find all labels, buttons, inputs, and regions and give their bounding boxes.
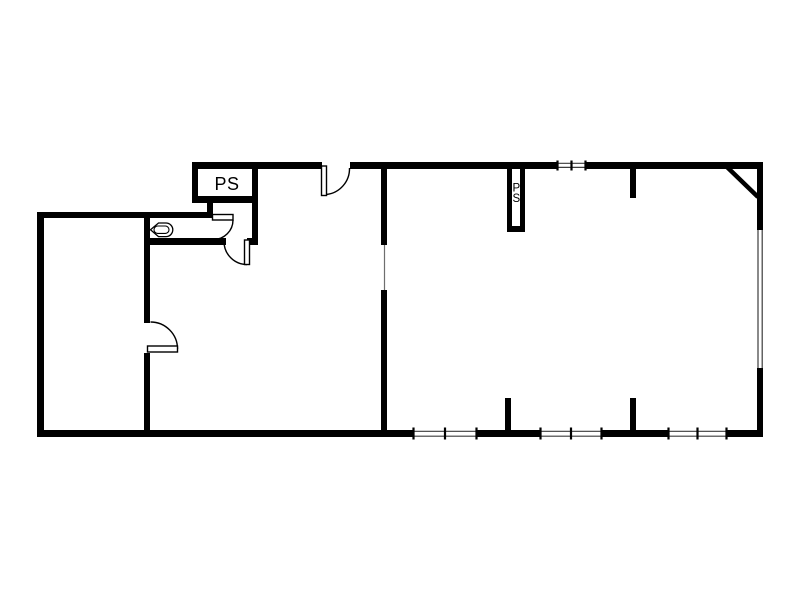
middle-wall-lower (381, 290, 387, 437)
ps-wc-right-wall (252, 162, 258, 245)
toilet-entry-door (224, 240, 250, 265)
bottom-stub-a (505, 398, 511, 437)
top-wall-right (586, 162, 763, 169)
door-leaf (245, 240, 250, 265)
door-leaf (148, 346, 178, 352)
left-room-top-wall (37, 212, 213, 218)
ps-room-bottom-wall (192, 196, 258, 203)
door-leaf (213, 215, 234, 221)
bottom-window-2 (540, 428, 602, 440)
floor-plan-drawing: PS P S (0, 0, 800, 600)
top-entry-door (322, 166, 350, 196)
top-window (557, 161, 586, 171)
bottom-window-3 (668, 428, 727, 440)
middle-wall-upper (381, 162, 387, 245)
room-divider-wall-upper (144, 212, 150, 323)
pipe-shaft-left-label: PS (214, 174, 239, 194)
right-wall-lower (757, 368, 763, 437)
left-outer-wall (37, 212, 44, 437)
urinal-bowl (154, 226, 169, 233)
door-swing-arc (214, 220, 234, 240)
corner-brace (727, 167, 758, 197)
top-stub-wall (630, 162, 636, 198)
walls (37, 162, 763, 437)
bottom-wall-1 (37, 430, 413, 437)
fixtures (151, 223, 173, 237)
room-divider-wall-lower (144, 353, 150, 437)
windows (413, 161, 762, 440)
shaft-bottom-wall (507, 226, 525, 232)
bottom-window-1 (413, 428, 477, 440)
shaft-right-wall (520, 162, 525, 232)
pipe-shaft-right-label-s: S (512, 193, 520, 205)
floor-plan-canvas: PS P S (0, 0, 800, 600)
labels: PS P S (214, 174, 520, 205)
door-leaf (322, 166, 327, 196)
door-swing-arc (327, 168, 350, 195)
urinal-fixture (151, 223, 173, 237)
door-swing-arc (224, 242, 247, 265)
door-swing-arc (151, 322, 178, 349)
right-window (758, 230, 762, 368)
shaft-left-wall (507, 162, 512, 232)
wc-door (213, 215, 234, 240)
left-room-door (148, 322, 178, 352)
doors (148, 166, 350, 352)
bottom-stub-b (630, 398, 636, 437)
